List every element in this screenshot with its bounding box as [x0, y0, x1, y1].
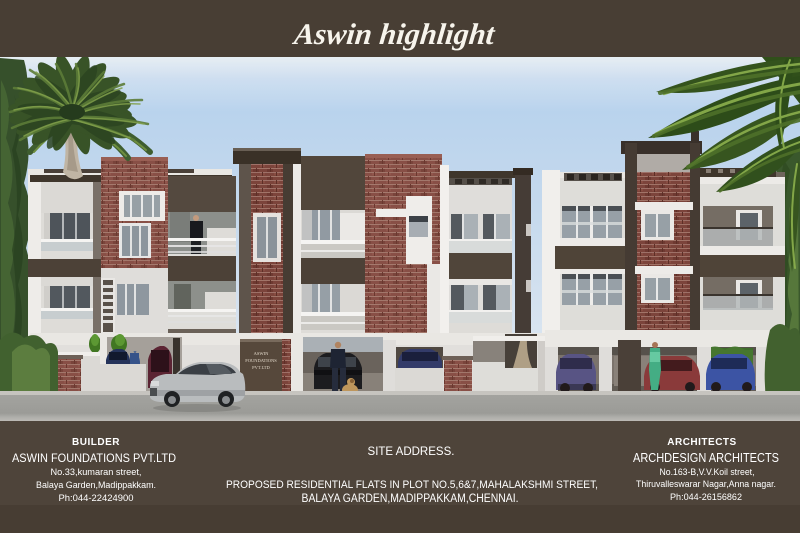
svg-text:ASWIN FOUNDATIONS PVT.LTD: ASWIN FOUNDATIONS PVT.LTD: [12, 451, 176, 465]
svg-text:BUILDER: BUILDER: [72, 437, 120, 448]
svg-text:No.163-B,V.V.Koil street,: No.163-B,V.V.Koil street,: [660, 467, 755, 478]
svg-text:Aswin highlight: Aswin highlight: [291, 17, 498, 51]
svg-text:Ph:044-22424900: Ph:044-22424900: [59, 493, 134, 504]
svg-text:Balaya Garden,Madippakkam.: Balaya Garden,Madippakkam.: [36, 480, 156, 491]
svg-text:ARCHDESIGN ARCHITECTS: ARCHDESIGN ARCHITECTS: [633, 451, 779, 465]
svg-text:Ph:044-26156862: Ph:044-26156862: [670, 492, 742, 503]
svg-text:No.33,kumaran street,: No.33,kumaran street,: [51, 467, 142, 478]
svg-text:Thiruvalleswarar Nagar,Anna na: Thiruvalleswarar Nagar,Anna nagar.: [636, 479, 776, 490]
svg-text:SITE ADDRESS.: SITE ADDRESS.: [368, 446, 455, 458]
svg-text:BALAYA GARDEN,MADIPPAKKAM,CHEN: BALAYA GARDEN,MADIPPAKKAM,CHENNAI.: [302, 493, 519, 505]
svg-text:PROPOSED RESIDENTIAL FLATS IN: PROPOSED RESIDENTIAL FLATS IN PLOT NO.5,…: [226, 479, 598, 491]
svg-text:ARCHITECTS: ARCHITECTS: [667, 437, 736, 448]
